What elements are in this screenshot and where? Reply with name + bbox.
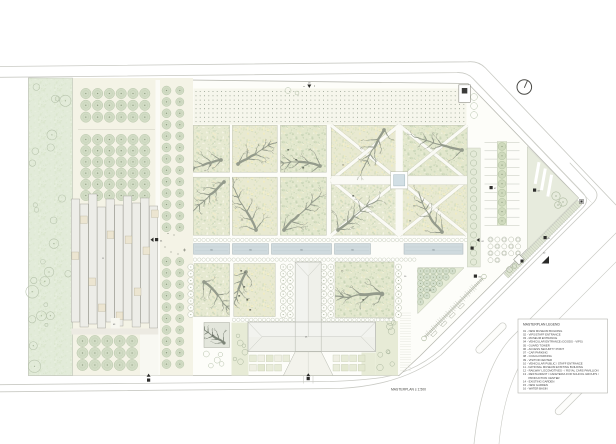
- svg-text:16 - WATER BASIN: 16 - WATER BASIN: [523, 387, 548, 391]
- svg-text:MASTERPLAN LEGEND: MASTERPLAN LEGEND: [523, 322, 560, 326]
- svg-text:MASTERPLAN s 1:500: MASTERPLAN s 1:500: [391, 387, 426, 391]
